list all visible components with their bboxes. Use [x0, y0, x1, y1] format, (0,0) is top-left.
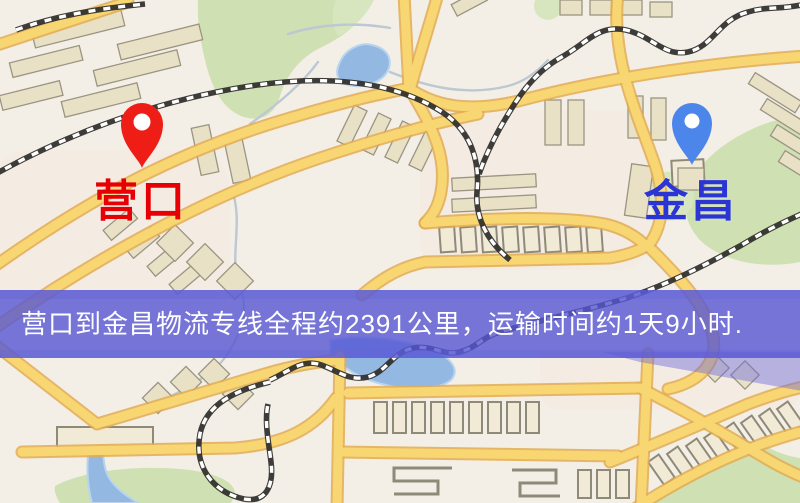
- destination-pin-icon: [672, 103, 712, 165]
- destination-city-label: 金昌: [644, 180, 738, 224]
- route-info-text: 营口到金昌物流专线全程约2391公里，运输时间约1天9小时.: [0, 299, 800, 350]
- map-canvas: [0, 0, 800, 503]
- origin-city-label: 营口: [94, 180, 188, 224]
- logistics-route-map: 营口 金昌 营口到金昌物流专线全程约2391公里，运输时间约1天9小时.: [0, 0, 800, 503]
- route-info-banner: 营口到金昌物流专线全程约2391公里，运输时间约1天9小时.: [0, 290, 800, 358]
